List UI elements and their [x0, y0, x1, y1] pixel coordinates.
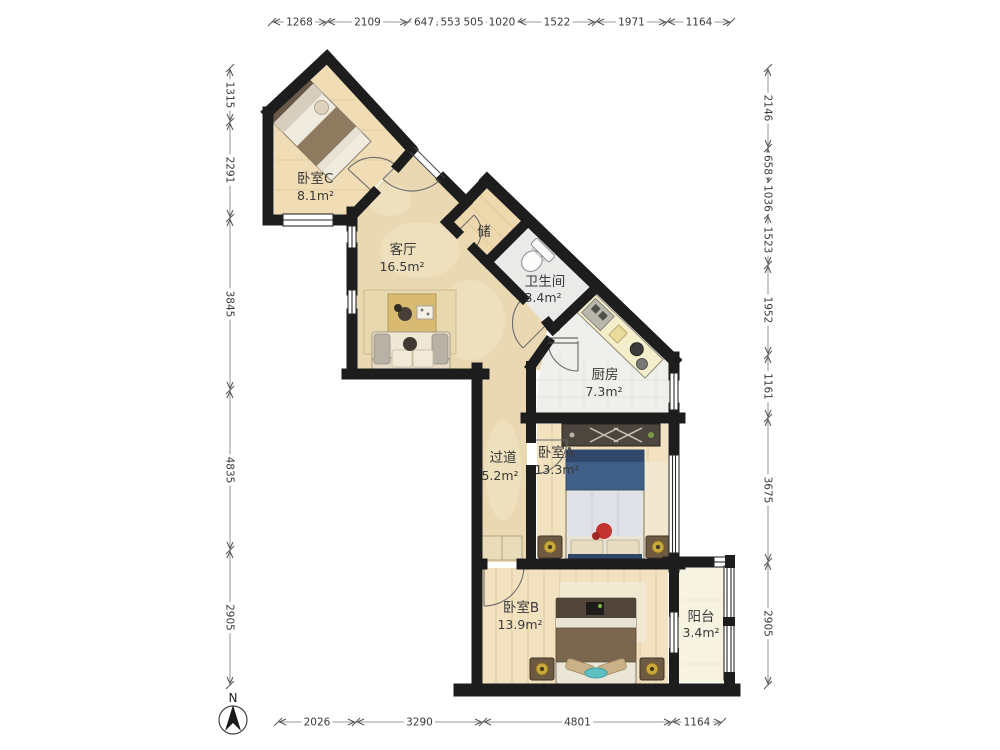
wardrobe [562, 424, 660, 446]
dimension-label: 2109 [354, 17, 381, 29]
dimension-label: 1036 [762, 185, 774, 212]
window-bedroom-a [669, 455, 679, 553]
dimension-label: 1971 [618, 17, 645, 29]
room-label-storage: 储 [477, 224, 491, 240]
room-label-hallway: 过道 [490, 450, 517, 466]
floorplan-canvas: 卧室C 8.1m² 客厅 16.5m² 储 卫生间 3.4m² 厨房 7.3m²… [0, 0, 1000, 750]
window-bedroom-b-balcony [670, 612, 678, 653]
dimension-label: 658 [762, 155, 774, 175]
sofa [372, 332, 450, 372]
dimension-label: 1315 [224, 82, 236, 109]
window-living-upper [348, 226, 356, 248]
room-label-bedroom-a: 卧室A [538, 444, 575, 461]
window-balcony-right [723, 555, 735, 686]
window-bedroom-c [283, 214, 333, 226]
dimension-label: 1161 [762, 373, 774, 400]
dimension-bottom: 2026329048011164 [274, 716, 726, 729]
dimension-label: 4801 [564, 717, 591, 729]
dimension-right: 2146658103615231952116136752905 [762, 64, 775, 689]
window-living-lower [348, 290, 356, 314]
compass-north-label: N [229, 691, 238, 705]
dimension-left: 13152291384548352905 [224, 64, 237, 689]
dimension-label: 1522 [544, 17, 571, 29]
room-label-balcony: 阳台 [688, 609, 715, 625]
dimension-label: 3290 [406, 717, 433, 729]
dimension-label: 2026 [304, 717, 331, 729]
window-kitchen [670, 373, 678, 410]
dimension-label: 647 [414, 17, 434, 29]
dimension-label: 1164 [684, 717, 711, 729]
room-label-bathroom: 卫生间 [525, 274, 566, 290]
room-label-bedroom-c: 卧室C [297, 170, 333, 187]
floorplan-page: 卧室C 8.1m² 客厅 16.5m² 储 卫生间 3.4m² 厨房 7.3m²… [0, 0, 1000, 750]
dimension-label: 2905 [224, 604, 236, 631]
room-label-living: 客厅 [390, 241, 417, 258]
living-room-furniture [364, 290, 456, 372]
room-area-bedroom-b: 13.9m² [497, 617, 542, 632]
room-area-living: 16.5m² [379, 259, 424, 274]
room-label-bedroom-b: 卧室B [503, 599, 539, 616]
bed-b [556, 598, 636, 684]
dimension-label: 1164 [686, 17, 713, 29]
dimension-label: 2905 [762, 610, 774, 637]
room-area-bedroom-a: 13.3m² [534, 462, 579, 477]
dimension-top: 126821096475535051020152219711164 [268, 16, 735, 29]
dimension-label: 505 [463, 17, 483, 29]
room-label-kitchen: 厨房 [592, 367, 619, 383]
dimension-label: 2291 [224, 157, 236, 184]
compass-needle-icon [225, 705, 241, 731]
compass: N [219, 691, 247, 734]
dimension-label: 4835 [224, 457, 236, 484]
dimension-label: 1523 [762, 227, 774, 254]
dimension-label: 2146 [762, 95, 774, 122]
room-area-hallway: 5.2m² [481, 468, 518, 483]
room-area-bathroom: 3.4m² [524, 290, 561, 305]
dimension-label: 1020 [489, 17, 516, 29]
dimension-label: 1268 [286, 17, 313, 29]
dimension-label: 3845 [224, 291, 236, 318]
dimension-label: 1952 [762, 297, 774, 324]
room-area-kitchen: 7.3m² [585, 384, 622, 399]
room-area-bedroom-c: 8.1m² [297, 188, 334, 203]
room-area-balcony: 3.4m² [682, 625, 719, 640]
dimension-label: 553 [440, 17, 460, 29]
dimension-label: 3675 [762, 477, 774, 504]
